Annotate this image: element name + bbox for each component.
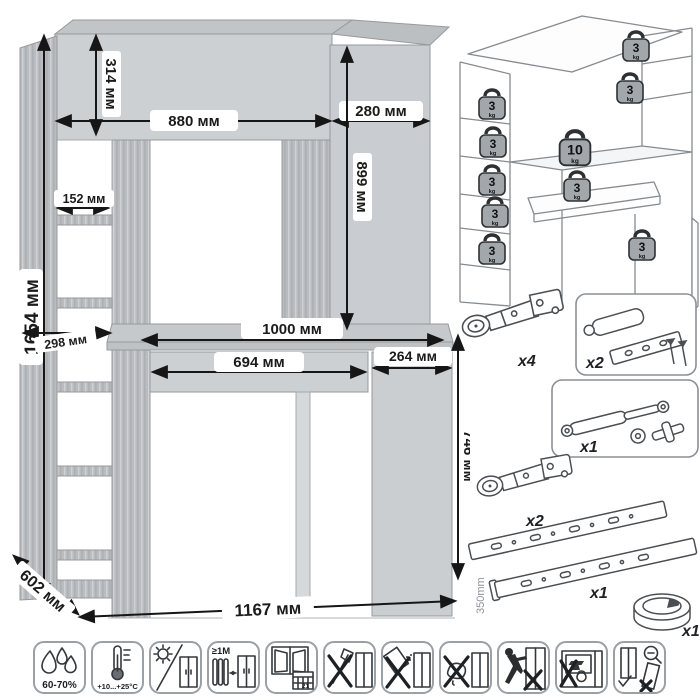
svg-text:kg: kg xyxy=(490,151,497,157)
svg-text:3: 3 xyxy=(489,244,496,258)
care-icon-row: 60-70% +10...+25°С xyxy=(33,641,666,694)
hardware-hinge-x2: х2 xyxy=(474,454,573,530)
svg-text:3: 3 xyxy=(492,207,499,221)
svg-text:kg: kg xyxy=(639,254,646,260)
care-icon-ventilation: 21 xyxy=(265,641,318,694)
weight-left-shelf-5: 3kg xyxy=(479,235,505,264)
sun-cabinet-icon xyxy=(151,643,200,692)
care-icon-no-dragging xyxy=(497,641,550,694)
svg-text:kg: kg xyxy=(627,97,634,103)
slide-length-label: 350mm xyxy=(475,577,487,614)
svg-text:≥1М: ≥1М xyxy=(212,646,230,657)
svg-text:kg: kg xyxy=(489,258,496,264)
radiator-distance-icon: ≥1М xyxy=(209,643,258,692)
main-dimension-drawing: 1654 мм 314 мм 880 мм 280 мм 899 мм xyxy=(0,0,470,645)
svg-text:х4: х4 xyxy=(517,353,536,370)
svg-text:3: 3 xyxy=(489,175,496,189)
svg-text:kg: kg xyxy=(489,189,496,195)
svg-text:152 мм: 152 мм xyxy=(63,192,106,206)
svg-text:10: 10 xyxy=(567,143,583,159)
upright-vs-tilted-cabinet-icon xyxy=(615,643,664,692)
care-icon-no-sharp-impact xyxy=(323,641,376,694)
hardware-door-damper: х2 xyxy=(576,294,696,375)
svg-text:3: 3 xyxy=(490,137,497,151)
care-icon-no-wet-cleaning xyxy=(439,641,492,694)
svg-text:х1: х1 xyxy=(579,439,598,456)
crossed-axe-icon xyxy=(325,643,374,692)
weight-left-shelf-3: 3kg xyxy=(479,166,505,195)
hardware-hinge-x4: х4 xyxy=(459,289,566,370)
svg-text:3: 3 xyxy=(633,41,640,55)
top-cabinet-front xyxy=(330,45,430,330)
crossed-wet-cloth-icon xyxy=(441,643,490,692)
svg-text:3: 3 xyxy=(627,83,634,97)
svg-text:280 мм: 280 мм xyxy=(355,103,406,120)
hardware-list: х4 х2 xyxy=(430,280,700,640)
weight-left-shelf-4: 3kg xyxy=(482,198,508,227)
dim-top-cabinet-width: 280 мм xyxy=(334,101,428,121)
weight-right-shelf: 3kg xyxy=(617,74,643,103)
furniture-spec-sheet: 1654 мм 314 мм 880 мм 280 мм 899 мм xyxy=(0,0,700,700)
open-window-calendar-icon: 21 xyxy=(267,643,316,692)
svg-text:kg: kg xyxy=(571,158,579,165)
svg-text:21: 21 xyxy=(302,683,310,690)
dim-shelf-depth: 152 мм xyxy=(54,190,114,208)
hardware-cable-grommet: x1 xyxy=(634,594,700,640)
svg-text:694 мм: 694 мм xyxy=(233,354,284,371)
care-icon-no-heavy-load xyxy=(555,641,608,694)
svg-text:1167 мм: 1167 мм xyxy=(234,599,302,621)
svg-text:1000 мм: 1000 мм xyxy=(262,321,322,338)
svg-text:kg: kg xyxy=(492,221,499,227)
svg-text:314 мм: 314 мм xyxy=(102,58,119,109)
crossed-heavy-items-icon xyxy=(557,643,606,692)
thermometer-icon: +10...+25°С xyxy=(93,643,142,692)
weight-drawer: 3kg xyxy=(564,172,590,201)
weight-base-cabinet: 3kg xyxy=(629,231,655,260)
care-icon-heater-distance: ≥1М xyxy=(207,641,260,694)
svg-text:х2: х2 xyxy=(585,355,604,372)
crossed-abrasive-powder-icon xyxy=(383,643,432,692)
hardware-gas-lift: х1 xyxy=(552,380,698,457)
care-icon-assemble-upright xyxy=(613,641,666,694)
care-icon-temperature: +10...+25°С xyxy=(91,641,144,694)
svg-text:3: 3 xyxy=(639,240,646,254)
svg-text:kg: kg xyxy=(633,55,640,61)
care-icon-no-abrasives xyxy=(381,641,434,694)
svg-text:60-70%: 60-70% xyxy=(42,680,77,691)
svg-text:+10...+25°С: +10...+25°С xyxy=(97,682,138,691)
svg-text:kg: kg xyxy=(574,195,581,201)
weight-desktop: 10kg xyxy=(560,131,591,165)
weight-left-shelf-1: 3kg xyxy=(479,90,505,119)
svg-text:x1: x1 xyxy=(589,585,608,602)
svg-text:3: 3 xyxy=(489,99,496,113)
svg-text:kg: kg xyxy=(489,113,496,119)
svg-text:3: 3 xyxy=(574,181,581,195)
care-icon-humidity: 60-70% xyxy=(33,641,86,694)
crossed-dragging-person-icon xyxy=(499,643,548,692)
water-drops-icon: 60-70% xyxy=(35,643,84,692)
svg-text:899 мм: 899 мм xyxy=(353,161,370,212)
care-icon-no-direct-sunlight xyxy=(149,641,202,694)
weight-left-shelf-2: 3kg xyxy=(480,128,506,157)
svg-text:x1: x1 xyxy=(681,623,700,640)
svg-text:880 мм: 880 мм xyxy=(168,113,219,130)
